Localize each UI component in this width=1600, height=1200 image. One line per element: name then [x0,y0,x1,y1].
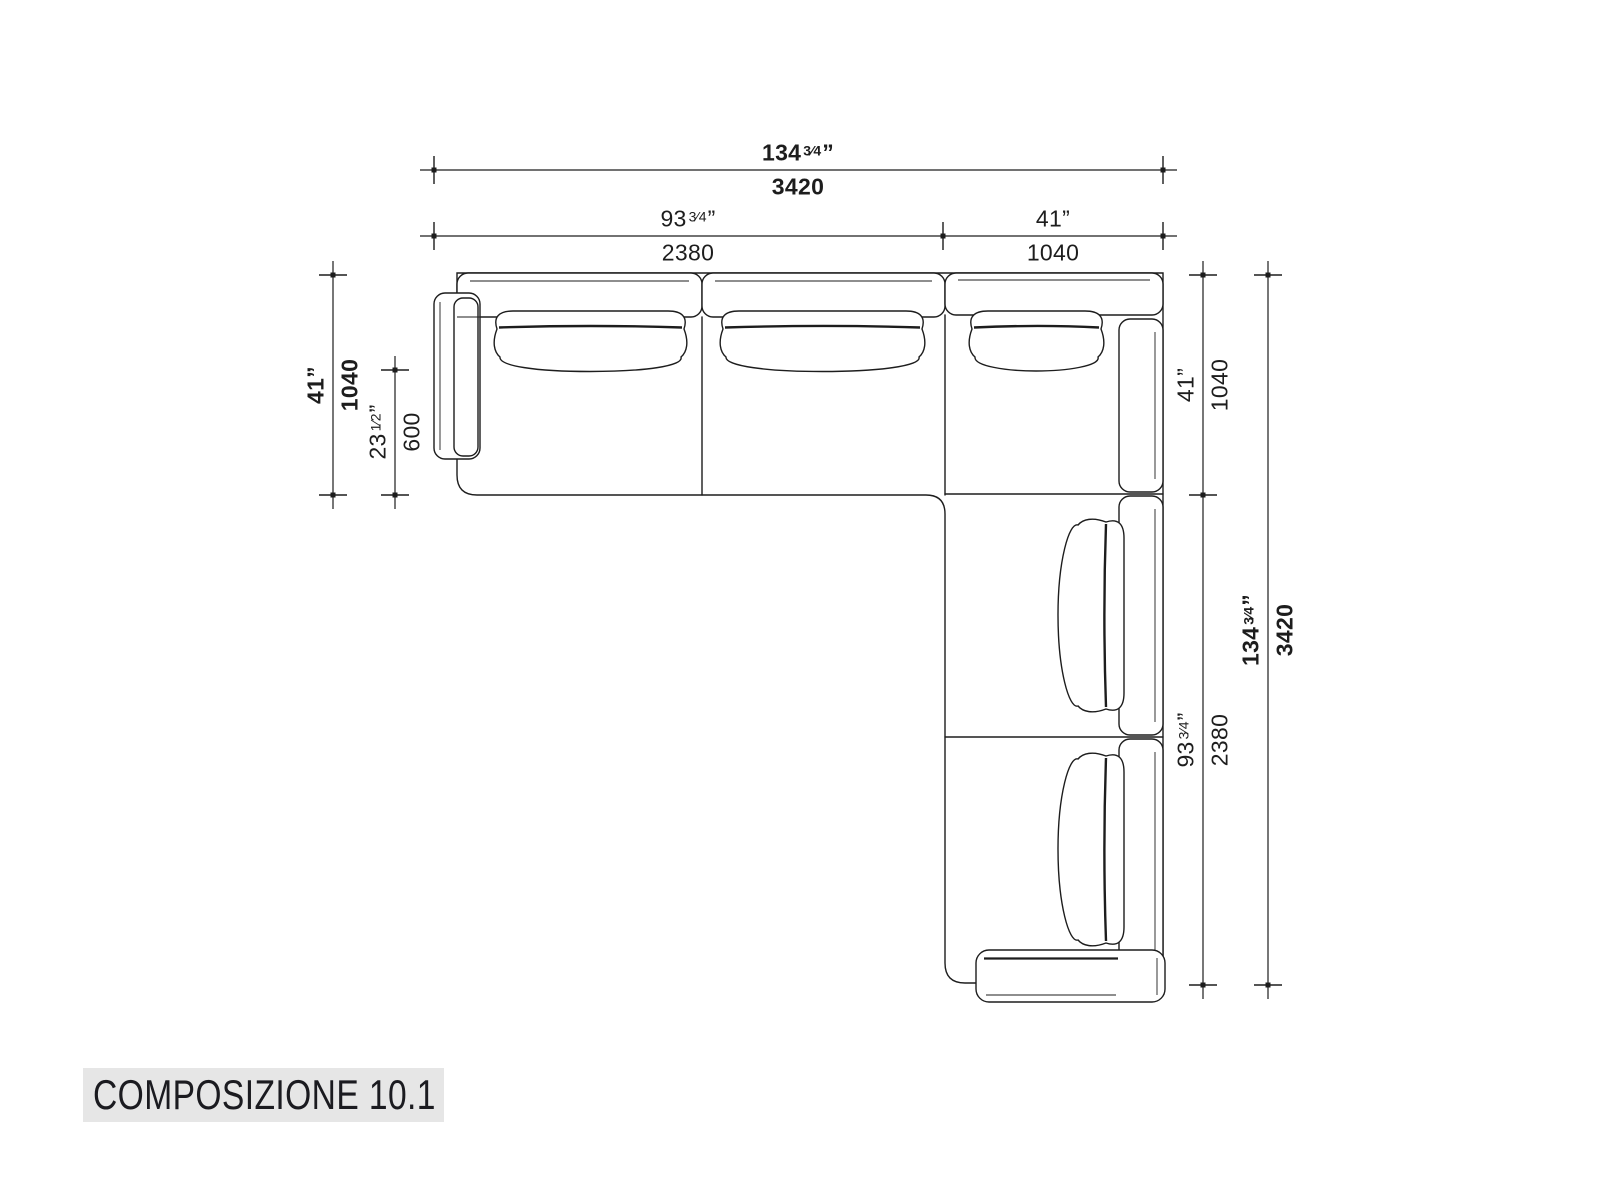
sofa-body-outline [457,273,1163,983]
dim-label-top-corner: 41” 1040 [1027,208,1079,265]
dim-label-left-seat-depth: 231⁄2” 600 [367,404,424,459]
dim-tick-dot [1266,273,1271,278]
dim-tick-dot [432,234,437,239]
backrest-right-segment-3 [1119,739,1163,977]
dim-inches: 41” [1175,368,1198,402]
back-cushion-4 [1058,753,1124,946]
dim-tick-dot [1201,983,1206,988]
dim-tick-dot [1266,983,1271,988]
dim-label-top-total: 1343⁄4” 3420 [762,142,834,199]
dim-tick-dot [393,493,398,498]
backrest-right-segment-1 [1119,319,1163,492]
armrest-left-inner [454,298,478,456]
back-cushion-corner [969,311,1104,371]
composition-title: COMPOSIZIONE 10.1 [93,1071,436,1119]
dim-tick-dot [331,493,336,498]
dim-tick-dot [331,273,336,278]
back-cushion-1 [494,311,687,372]
dim-tick-dot [1201,493,1206,498]
dim-inches: 41” [1036,208,1070,231]
technical-drawing-page: 1343⁄4” 3420 933⁄4” 2380 41” 1040 41” 10… [0,0,1600,1200]
backrest-top-segment-3 [945,273,1163,315]
dim-inches: 41” [305,366,328,404]
dim-label-left-depth: 41” 1040 [305,359,362,411]
dim-label-right-corner: 41” 1040 [1175,359,1232,411]
dim-tick-dot [432,168,437,173]
dim-label-right-total: 1343⁄4” 3420 [1240,594,1297,666]
dim-tick-dot [1161,168,1166,173]
dim-label-top-seats: 933⁄4” 2380 [660,208,715,265]
composition-title-bar: COMPOSIZIONE 10.1 [83,1068,444,1122]
back-cushion-2 [720,311,925,372]
dim-mm: 3420 [1274,604,1297,656]
dim-inches: 933⁄4” [1175,712,1198,767]
dim-mm: 1040 [1027,242,1079,265]
dim-tick-dot [1201,273,1206,278]
backrest-right-segment-2 [1119,496,1163,735]
back-cushion-3 [1058,519,1124,712]
dim-tick-dot [941,234,946,239]
dim-inches: 1343⁄4” [1240,594,1263,666]
dim-label-right-seats: 933⁄4” 2380 [1175,712,1232,767]
dim-mm: 1040 [1209,359,1232,411]
dim-inches: 1343⁄4” [762,142,834,165]
dim-inches: 933⁄4” [660,208,715,231]
dim-mm: 2380 [662,242,714,265]
sofa-body-group [457,273,1163,983]
dim-mm: 2380 [1209,714,1232,766]
dim-tick-dot [1161,234,1166,239]
dim-mm: 3420 [772,176,824,199]
dim-mm: 600 [401,412,424,451]
dim-tick-dot [393,368,398,373]
dim-inches: 231⁄2” [367,404,390,459]
dim-mm: 1040 [339,359,362,411]
